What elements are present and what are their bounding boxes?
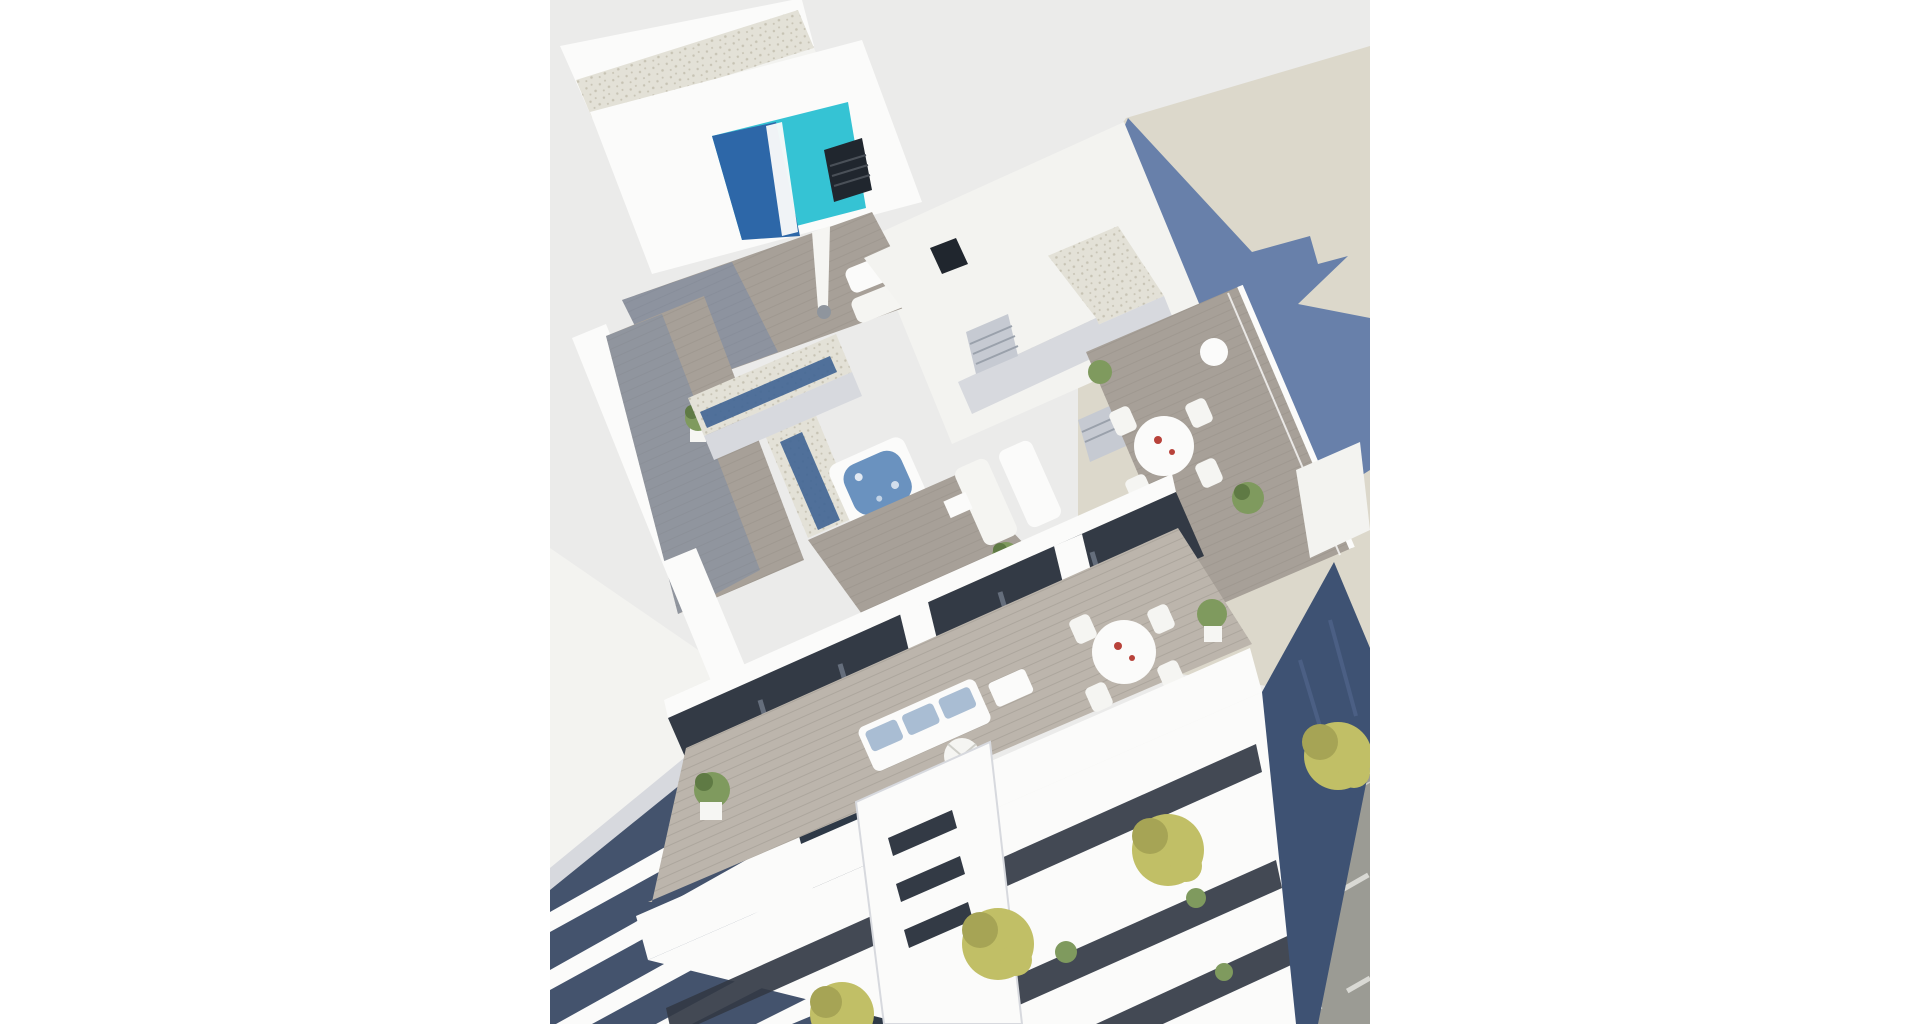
tree-canopy [1338,756,1370,788]
potted-plant [1197,599,1227,629]
planter-pot [1204,626,1222,642]
potted-plant [1088,360,1112,384]
render-page [0,0,1920,1024]
dining-table-2 [1092,620,1156,684]
table-decor-red [1169,449,1175,455]
planter-pot [700,802,722,820]
tree-canopy-dark [1302,724,1338,760]
tree-canopy-dark [810,986,842,1018]
parasol-base [817,305,831,319]
tree-canopy [1170,850,1202,882]
potted-plant-shadow [695,773,713,791]
tree-canopy [1000,944,1032,976]
potted-plant-shadow [1234,484,1250,500]
bistro-table [1200,338,1228,366]
tree-canopy-dark [1132,818,1168,854]
table-decor-red [1154,436,1162,444]
tree [1132,814,1204,886]
tree-canopy-dark [962,912,998,948]
table-decor-red [1114,642,1122,650]
table-decor-red [1129,655,1135,661]
balcony-plant [1186,888,1206,908]
balcony-plant [1055,941,1077,963]
balcony-plant [1215,963,1233,981]
tree [962,908,1034,980]
architectural-render [0,0,1920,1024]
dining-table [1134,416,1194,476]
